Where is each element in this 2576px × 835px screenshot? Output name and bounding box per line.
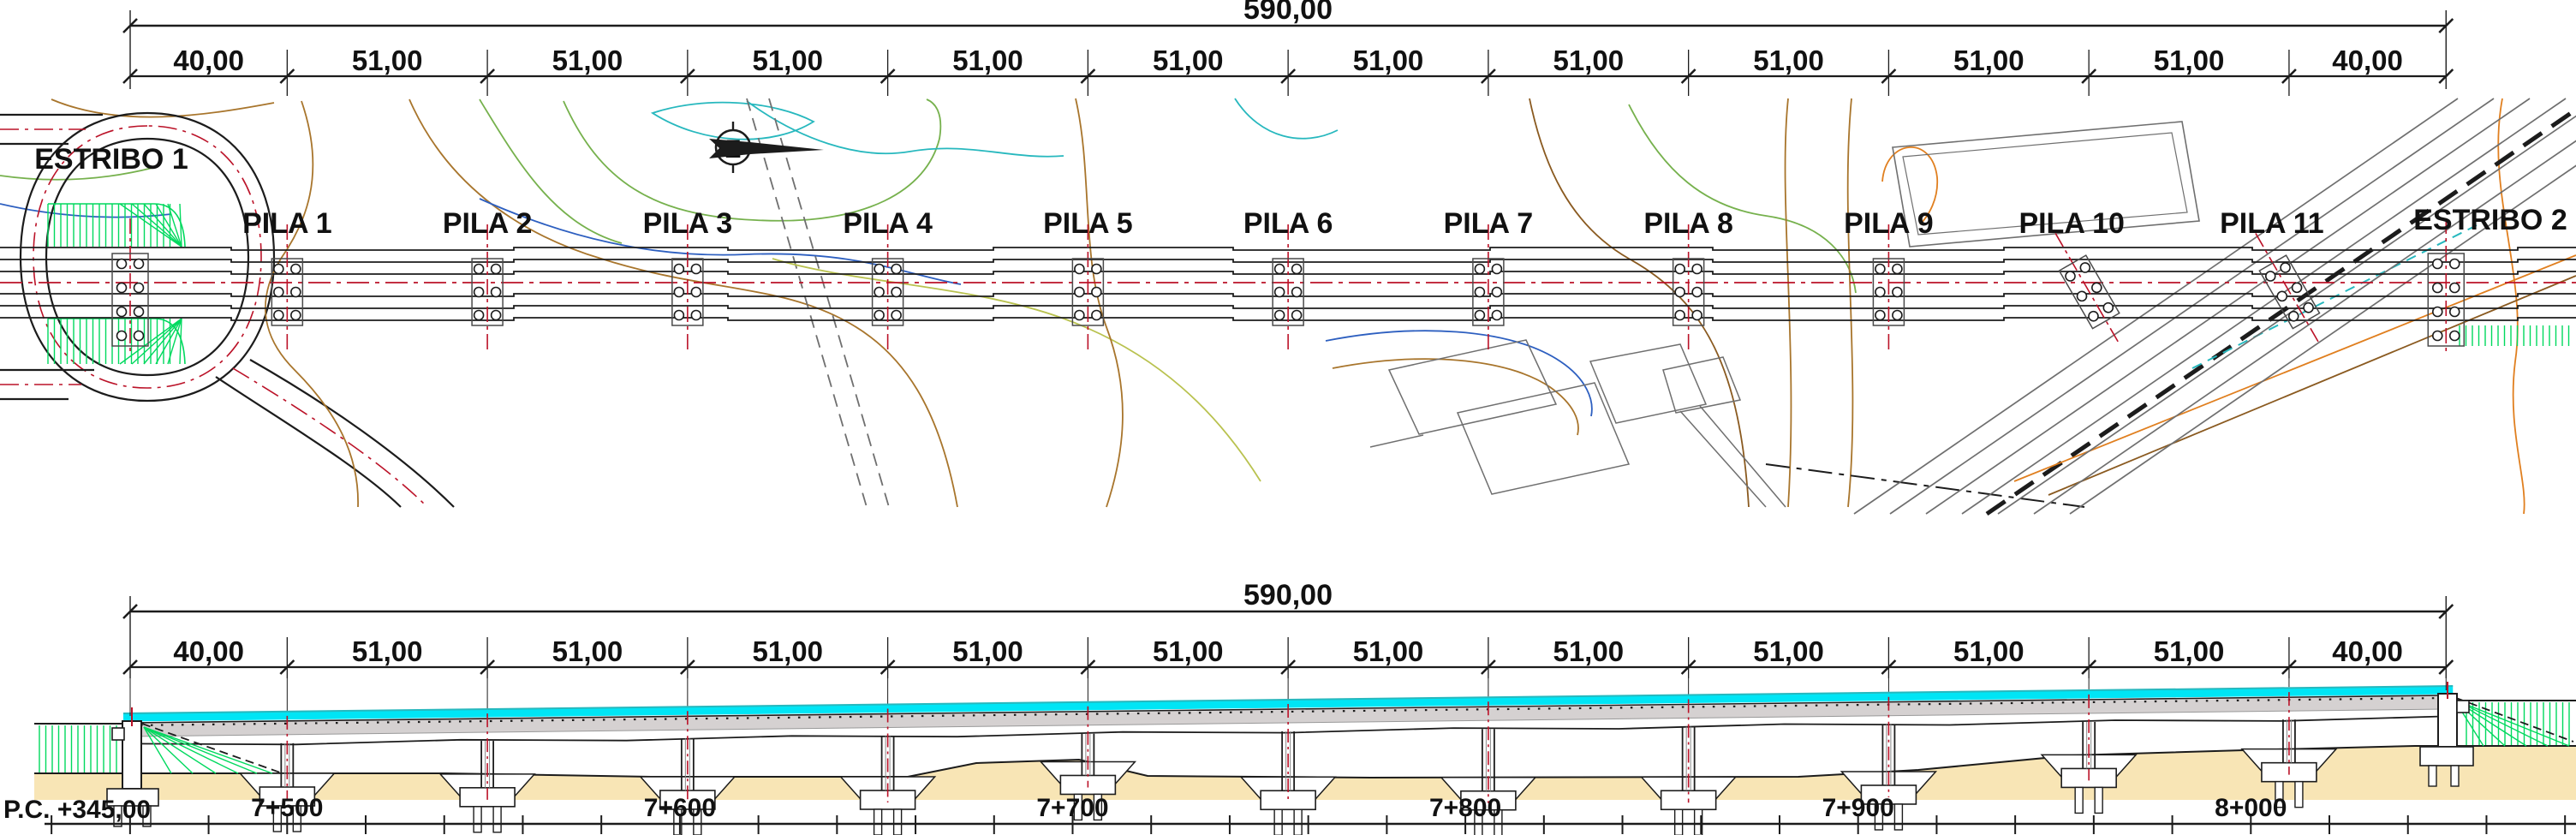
road-line (1389, 340, 1556, 434)
pier-symbol-plan (271, 224, 302, 351)
chainage-label: 7+700 (1036, 794, 1108, 822)
pile-circle (274, 288, 283, 297)
pier-pile (2075, 787, 2083, 813)
plan-support-labels: ESTRIBO 1PILA 1PILA 2PILA 3PILA 4PILA 5P… (34, 143, 2567, 240)
pier-pile (1894, 804, 1902, 830)
pile-circle (2433, 283, 2442, 293)
pile-circle (274, 265, 283, 274)
span-dimension-label: 51,00 (2154, 45, 2225, 76)
road-line (769, 98, 889, 507)
pile-circle (1292, 311, 1302, 320)
pile-circle (1675, 265, 1685, 274)
pile-circle (2433, 307, 2442, 317)
pile-circle (1092, 288, 1101, 297)
pile-circle (134, 259, 144, 269)
span-dimension-label: 51,00 (352, 45, 423, 76)
pile-circle (134, 331, 144, 341)
pile-circle (2433, 331, 2442, 341)
pile-circle (891, 265, 901, 274)
hatch-boundary (48, 319, 185, 364)
pile-circle (1875, 311, 1885, 320)
abutment-wall (2438, 694, 2457, 747)
pile-circle (1692, 311, 1702, 320)
pile-circle (1675, 288, 1685, 297)
contour-line (1766, 464, 2084, 507)
pier-symbol-plan (1072, 224, 1103, 351)
pile-circle (691, 311, 701, 320)
pier-elevation (841, 678, 935, 835)
pile-circle (2450, 307, 2460, 317)
pile-circle (1275, 265, 1285, 274)
pile-circle (1893, 265, 1902, 274)
pile-circle (691, 288, 701, 297)
hatch-fan-line (144, 319, 182, 364)
pile-circle (2275, 289, 2288, 302)
span-dimension-label: 51,00 (952, 45, 1023, 76)
pile-circle (1875, 288, 1885, 297)
span-dimension-label: 51,00 (552, 45, 623, 76)
support-centerline (2055, 233, 2119, 343)
pile-circle (1475, 265, 1484, 274)
chainage-label: 7+500 (251, 794, 323, 822)
pier-label: PILA 3 (643, 207, 733, 240)
embankment-hatch (48, 319, 185, 364)
contour-line (250, 360, 454, 507)
pile-circle (117, 259, 127, 269)
contour-line (233, 368, 427, 507)
pile-circle (691, 265, 701, 274)
pile-circle (1075, 311, 1084, 320)
span-dimension-label: 51,00 (752, 45, 823, 76)
contour-line (216, 377, 401, 507)
elevation-total-dimension-label: 590,00 (1243, 579, 1333, 611)
pile-circle (1875, 265, 1885, 274)
abutment-pile (2451, 766, 2459, 786)
abutment-seat (2457, 701, 2469, 713)
pile-circle (2450, 259, 2460, 269)
contour-line (1235, 98, 1338, 139)
span-dimension-label: 51,00 (2154, 635, 2225, 667)
span-dimension-label: 40,00 (2332, 45, 2403, 76)
pile-circle (1092, 265, 1101, 274)
span-dimension-label: 40,00 (173, 45, 244, 76)
chainage-label: 7+800 (1429, 794, 1501, 822)
pier-pile (2095, 787, 2102, 813)
pile-circle (492, 288, 501, 297)
pile-circle (1675, 311, 1685, 320)
pile-circle (1075, 265, 1084, 274)
pile-circle (2450, 283, 2460, 293)
pile-circle (1893, 288, 1902, 297)
elevation-view (34, 678, 2576, 835)
road-line (1458, 383, 1629, 494)
pier-label: PILA 2 (443, 207, 533, 240)
hatch-fan-line (144, 204, 182, 247)
pile-circle (1292, 288, 1302, 297)
pier-pile (874, 809, 882, 835)
datum-label: P.C. +345,00 (3, 796, 151, 824)
pier-label: PILA 1 (242, 207, 332, 240)
chainage-label: 7+600 (644, 794, 716, 822)
pile-circle (2450, 331, 2460, 341)
hatch-fan-line (156, 319, 182, 364)
contour-line (409, 99, 957, 507)
pile-circle (291, 265, 301, 274)
pile-circle (134, 283, 144, 293)
pier-pile (1294, 809, 1302, 835)
pier-label: PILA 11 (2220, 207, 2324, 240)
pile-circle (474, 288, 484, 297)
pier-label: PILA 6 (1243, 207, 1333, 240)
contour-line (1333, 359, 1578, 435)
pile-circle (874, 311, 884, 320)
span-dimension-label: 51,00 (752, 635, 823, 667)
pile-circle (492, 311, 501, 320)
pile-circle (1475, 288, 1484, 297)
pier-label: PILA 10 (2018, 207, 2124, 240)
pier-symbol-plan (1473, 224, 1504, 351)
pile-circle (1893, 311, 1902, 320)
pile-circle (2102, 301, 2114, 314)
abutment-pile (2429, 766, 2436, 786)
pier-pile (2295, 782, 2303, 808)
contour-line (1529, 98, 1749, 507)
pile-circle (274, 311, 283, 320)
span-dimension-label: 51,00 (1753, 635, 1824, 667)
contour-line (1848, 98, 1853, 507)
pier-pile (1675, 809, 1683, 835)
road-line (1590, 344, 1706, 423)
abutment-symbol-plan (112, 218, 148, 355)
pile-circle (674, 265, 683, 274)
road-line (747, 98, 867, 507)
deck-edge-line (0, 248, 2576, 250)
span-dimension-label: 40,00 (173, 635, 244, 667)
pile-circle (1275, 311, 1285, 320)
pier-symbol-plan (1273, 224, 1303, 351)
pier-pile (493, 807, 501, 832)
span-dimension-label: 51,00 (1753, 45, 1824, 76)
span-dimension-label: 51,00 (1153, 45, 1224, 76)
embankment-hatch (2460, 325, 2569, 346)
span-dimension-label: 51,00 (952, 635, 1023, 667)
pile-circle (1692, 265, 1702, 274)
contour-line (772, 259, 1261, 481)
pile-circle (674, 288, 683, 297)
pile-circle (1475, 311, 1484, 320)
pile-circle (874, 288, 884, 297)
pier-pile (474, 807, 481, 832)
pile-circle (1692, 288, 1702, 297)
pile-circle (117, 307, 127, 317)
pile-circle (117, 283, 127, 293)
hatch-boundary (48, 204, 185, 247)
pile-circle (117, 331, 127, 341)
pile-circle (1075, 288, 1084, 297)
pile-circle (134, 307, 144, 317)
plan-total-dimension-label: 590,00 (1243, 0, 1333, 26)
span-dimension-label: 51,00 (1953, 635, 2024, 667)
pile-circle (2087, 310, 2100, 323)
pier-symbol-plan (672, 224, 703, 351)
span-dimension-label: 51,00 (1553, 45, 1624, 76)
abutment-label: ESTRIBO 1 (34, 143, 188, 176)
pile-circle (891, 288, 901, 297)
abutment-footing (2420, 747, 2473, 766)
pile-circle (1292, 265, 1302, 274)
bridge-drawing-sheet: Z ESTRIBO 1PILA 1PILA 2PILA 3PILA 4PILA … (0, 0, 2576, 835)
contour-line (653, 103, 814, 140)
pile-circle (1492, 311, 1501, 320)
embankment-hatch (48, 204, 185, 247)
pile-circle (291, 311, 301, 320)
span-dimension-label: 51,00 (1353, 45, 1424, 76)
chainage-label: 8+000 (2215, 794, 2287, 822)
pier-symbol-plan (472, 224, 503, 351)
contour-line (1076, 98, 1123, 507)
pier-label: PILA 4 (843, 207, 933, 240)
pile-circle (1275, 288, 1285, 297)
abutment-seat (112, 728, 124, 740)
pile-circle (1092, 311, 1101, 320)
pile-circle (291, 288, 301, 297)
pier-pile (1274, 809, 1282, 835)
pile-circle (1492, 288, 1501, 297)
pile-circle (674, 311, 683, 320)
contour-line (563, 99, 940, 221)
pile-circle (492, 265, 501, 274)
contour-line (1629, 104, 1856, 293)
hatch-fan-line (156, 204, 182, 247)
abutment-label: ESTRIBO 2 (2413, 204, 2567, 236)
pile-circle (874, 265, 884, 274)
chainage-label: 7+900 (1822, 794, 1894, 822)
span-dimension-label: 51,00 (552, 635, 623, 667)
span-dimension-label: 51,00 (1953, 45, 2024, 76)
contour-line (1326, 331, 1592, 416)
span-dimension-label: 51,00 (1553, 635, 1624, 667)
pier-symbol-plan (1673, 224, 1704, 351)
pier-symbol-plan (873, 224, 903, 351)
road-line (1680, 411, 1766, 507)
road-line (1370, 435, 1423, 447)
pier-pile (894, 809, 902, 835)
road-line (1700, 406, 1786, 507)
pile-circle (474, 311, 484, 320)
pier-symbol-plan (1873, 224, 1904, 351)
span-dimension-label: 40,00 (2332, 635, 2403, 667)
abutment-wall (122, 721, 141, 789)
pier-footing (1261, 790, 1315, 809)
pier-elevation (440, 678, 534, 832)
pile-circle (474, 265, 484, 274)
pile-circle (2075, 289, 2088, 302)
contour-line (265, 101, 358, 507)
pier-label: PILA 5 (1043, 207, 1133, 240)
north-pointer (709, 139, 824, 158)
span-dimension-label: 51,00 (1353, 635, 1424, 667)
contour-line (1786, 98, 1792, 507)
bridge-drawing-svg: Z ESTRIBO 1PILA 1PILA 2PILA 3PILA 4PILA … (0, 0, 2576, 835)
pile-circle (2433, 259, 2442, 269)
pier-label: PILA 8 (1643, 207, 1733, 240)
pier-label: PILA 9 (1844, 207, 1934, 240)
pile-circle (1492, 265, 1501, 274)
pier-label: PILA 7 (1444, 207, 1534, 240)
pile-circle (891, 311, 901, 320)
span-dimension-label: 51,00 (1153, 635, 1224, 667)
span-dimension-label: 51,00 (352, 635, 423, 667)
